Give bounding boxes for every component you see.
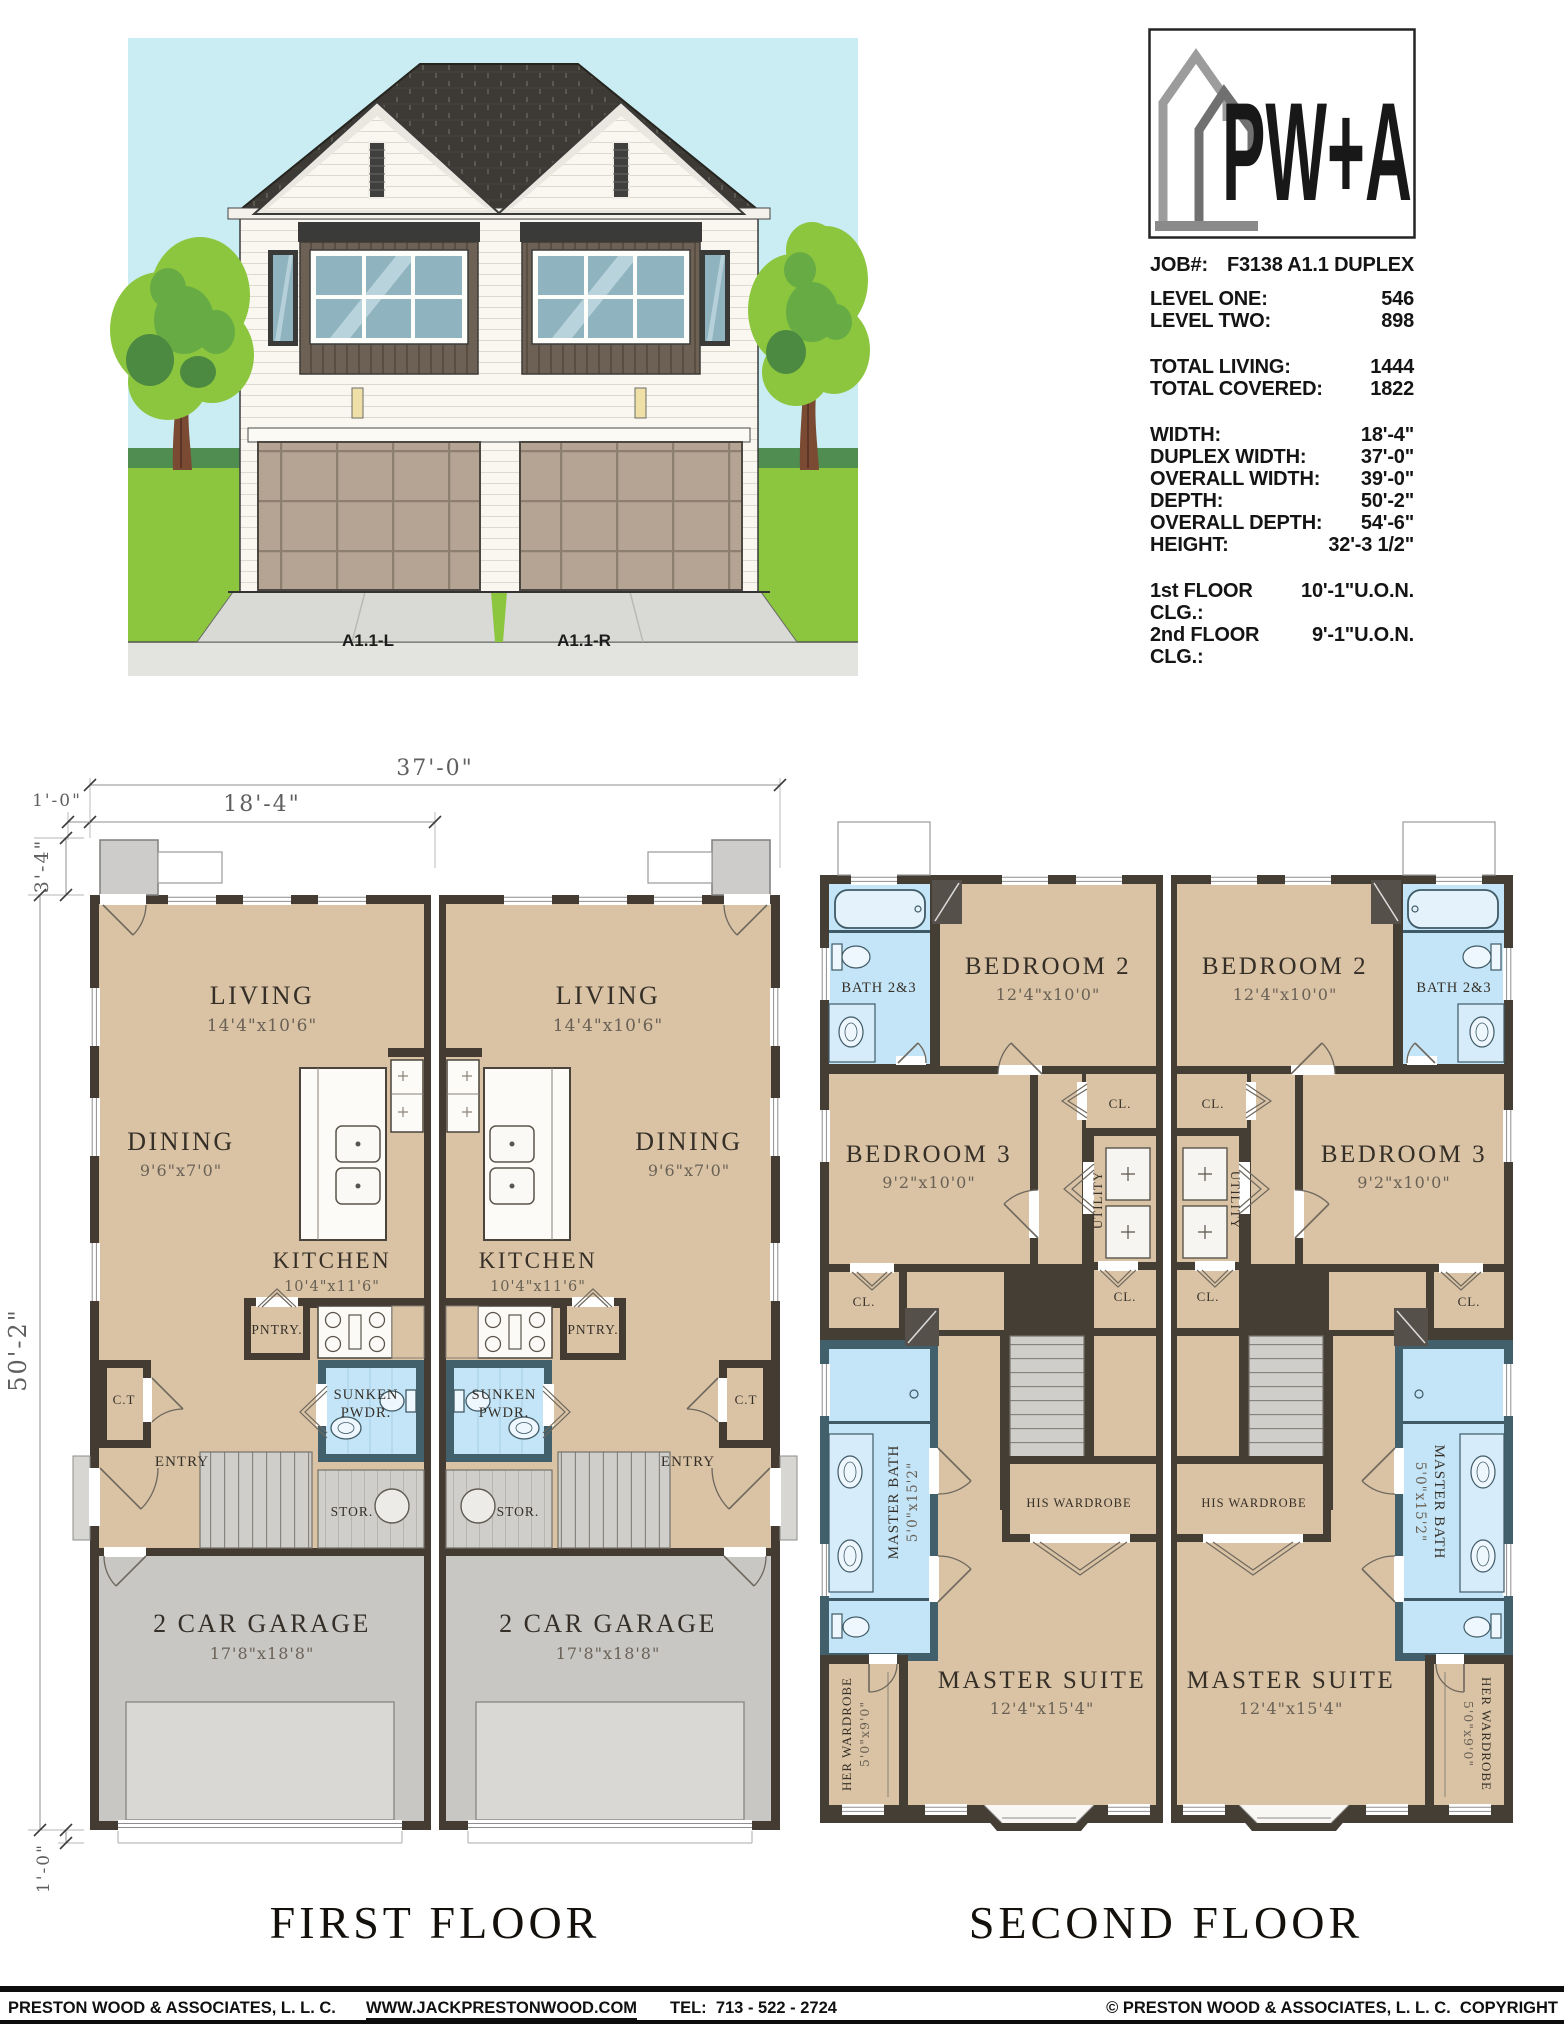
garage-door-left — [258, 442, 480, 590]
room-label-kitchen-left: KITCHEN — [273, 1248, 391, 1273]
window-left-unit — [298, 222, 480, 374]
first-floor-plan: 37'-0" 18'-4" 1'-0" 3'-4" 50'-2" 1'-0" L… — [0, 730, 800, 1970]
job-info-panel: JOB#: F3138 A1.1 DUPLEX LEVEL ONE:546 LE… — [1150, 254, 1414, 668]
slim-window-left — [268, 250, 298, 346]
footer-phone: TEL: 713 - 522 - 2724 — [670, 1996, 837, 2020]
room-label-bath23-right: BATH 2&3 — [1416, 980, 1491, 996]
info-value: 54'-6" — [1361, 512, 1414, 534]
room-size-mastersuite-right: 12'4"x15'4" — [1239, 1699, 1344, 1718]
room-label-garage-right: 2 CAR GARAGE — [499, 1609, 717, 1638]
room-label-kitchen-right: KITCHEN — [479, 1248, 597, 1273]
info-value: 1822 — [1370, 378, 1414, 400]
info-value: 898 — [1381, 310, 1414, 332]
footer-rule-top — [0, 1986, 1564, 1992]
room-size-bedroom2-left: 12'4"x10'0" — [996, 985, 1101, 1004]
info-label: 2nd FLOOR CLG.: — [1150, 624, 1312, 668]
info-row: DEPTH:50'-2" — [1150, 490, 1414, 512]
info-label: DEPTH: — [1150, 490, 1223, 512]
room-label-entry-right: ENTRY — [661, 1454, 715, 1470]
room-label-coat-right: C.T — [735, 1392, 758, 1407]
room-size-mastersuite-left: 12'4"x15'4" — [990, 1699, 1095, 1718]
info-label: LEVEL ONE: — [1150, 288, 1268, 310]
plan-sheet: A1.1-L A1.1-R PW+A JOB#: F3138 A1.1 DUPL… — [0, 0, 1564, 2030]
closet-label: CL. — [853, 1294, 876, 1309]
info-value: 32'-3 1/2" — [1328, 534, 1414, 556]
room-label-storage-left: STOR. — [331, 1504, 374, 1519]
info-label: 1st FLOOR CLG.: — [1150, 580, 1301, 624]
room-label-powder2-left: PWDR. — [341, 1405, 392, 1421]
footer-website-link[interactable]: WWW.JACKPRESTONWOOD.COM — [366, 1996, 637, 2020]
info-row: TOTAL COVERED:1822 — [1150, 378, 1414, 400]
room-label-dining-left: DINING — [127, 1127, 234, 1156]
info-label: LEVEL TWO: — [1150, 310, 1271, 332]
room-label-powder1-left: SUNKEN — [334, 1387, 399, 1403]
room-size-herwardrobe-left: 5'0"x9'0" — [857, 1701, 872, 1767]
info-row: WIDTH:18'-4" — [1150, 424, 1414, 446]
room-size-dining-left: 9'6"x7'0" — [140, 1161, 222, 1180]
room-size-dining-right: 9'6"x7'0" — [648, 1161, 730, 1180]
closet-label: CL. — [1114, 1289, 1137, 1304]
footer-website-text[interactable]: WWW.JACKPRESTONWOOD.COM — [366, 1999, 637, 2020]
info-row: HEIGHT:32'-3 1/2" — [1150, 534, 1414, 556]
info-row: TOTAL LIVING:1444 — [1150, 356, 1414, 378]
info-row: LEVEL ONE:546 — [1150, 288, 1414, 310]
room-label-bedroom3-left: BEDROOM 3 — [846, 1141, 1012, 1168]
window-right-unit — [520, 222, 702, 374]
room-label-masterbath-right: MASTER BATH — [1431, 1445, 1447, 1560]
room-label-living-left: LIVING — [210, 981, 315, 1010]
info-value: 18'-4" — [1361, 424, 1414, 446]
footer-rule-bottom — [0, 2020, 1564, 2024]
dim-overall-width: 37'-0" — [396, 756, 474, 781]
room-label-entry-left: ENTRY — [155, 1454, 209, 1470]
info-row: OVERALL DEPTH:54'-6" — [1150, 512, 1414, 534]
room-label-garage-left: 2 CAR GARAGE — [153, 1609, 371, 1638]
dim-porch-depth: 3'-4" — [31, 839, 53, 894]
info-label: OVERALL WIDTH: — [1150, 468, 1320, 490]
elevation-rendering: A1.1-L A1.1-R — [105, 20, 885, 680]
room-label-mastersuite-right: MASTER SUITE — [1187, 1667, 1395, 1694]
room-label-masterbath-left: MASTER BATH — [886, 1445, 902, 1560]
room-label-bath23-left: BATH 2&3 — [841, 980, 916, 996]
room-label-coat-left: C.T — [113, 1392, 136, 1407]
job-number-row: JOB#: F3138 A1.1 DUPLEX — [1150, 254, 1414, 276]
room-label-utility-right: UTILITY — [1228, 1171, 1243, 1229]
room-label-herwardrobe-left: HER WARDROBE — [839, 1677, 854, 1791]
room-label-storage-right: STOR. — [497, 1504, 540, 1519]
first-floor-title: FIRST FLOOR — [270, 1897, 601, 1948]
info-row: 1st FLOOR CLG.:10'-1"U.O.N. — [1150, 580, 1414, 624]
unit-label-left: A1.1-L — [342, 631, 394, 650]
closet-label: CL. — [1109, 1096, 1132, 1111]
room-label-bedroom2-left: BEDROOM 2 — [965, 953, 1131, 980]
room-size-herwardrobe-right: 5'0"x9'0" — [1461, 1701, 1476, 1767]
room-label-pantry-left: PNTRY. — [251, 1322, 302, 1337]
room-size-kitchen-right: 10'4"x11'6" — [490, 1279, 586, 1295]
info-value: 37'-0" — [1361, 446, 1414, 468]
pwa-logo: PW+A — [1148, 28, 1418, 240]
room-size-living-left: 14'4"x10'6" — [207, 1016, 317, 1036]
street — [128, 642, 858, 676]
room-size-bedroom2-right: 12'4"x10'0" — [1233, 985, 1338, 1004]
sconce-left — [352, 388, 363, 418]
info-label: OVERALL DEPTH: — [1150, 512, 1322, 534]
room-size-masterbath-left: 5'0"x15'2" — [905, 1462, 921, 1542]
info-label: HEIGHT: — [1150, 534, 1229, 556]
room-label-hiswardrobe-right: HIS WARDROBE — [1201, 1496, 1306, 1510]
info-value: 1444 — [1370, 356, 1414, 378]
room-size-garage-right: 17'8"x18'8" — [556, 1644, 661, 1663]
info-label: DUPLEX WIDTH: — [1150, 446, 1306, 468]
dim-unit-width: 18'-4" — [223, 792, 301, 817]
room-label-mastersuite-left: MASTER SUITE — [938, 1667, 1146, 1694]
brand-text: PW+A — [1222, 73, 1412, 230]
info-label: TOTAL LIVING: — [1150, 356, 1291, 378]
closet-label: CL. — [1458, 1294, 1481, 1309]
room-label-herwardrobe-right: HER WARDROBE — [1479, 1677, 1494, 1791]
info-value: 50'-2" — [1361, 490, 1414, 512]
dim-porch-offset: 1'-0" — [32, 791, 82, 811]
room-label-dining-right: DINING — [635, 1127, 742, 1156]
info-label: TOTAL COVERED: — [1150, 378, 1323, 400]
second-floor-title: SECOND FLOOR — [969, 1897, 1363, 1948]
room-label-utility-left: UTILITY — [1090, 1171, 1105, 1229]
info-row: 2nd FLOOR CLG.:9'-1"U.O.N. — [1150, 624, 1414, 668]
dim-depth: 50'-2" — [4, 1308, 32, 1392]
room-size-living-right: 14'4"x10'6" — [553, 1016, 663, 1036]
second-floor-plan: BATH 2&3 BEDROOM 2 12'4"x10'0" CL. BEDRO… — [790, 730, 1564, 1970]
room-label-bedroom2-right: BEDROOM 2 — [1202, 953, 1368, 980]
room-size-bedroom3-left: 9'2"x10'0" — [882, 1173, 975, 1192]
info-row: DUPLEX WIDTH:37'-0" — [1150, 446, 1414, 468]
info-label: WIDTH: — [1150, 424, 1221, 446]
info-row: LEVEL TWO:898 — [1150, 310, 1414, 332]
info-row: OVERALL WIDTH:39'-0" — [1150, 468, 1414, 490]
info-value: 10'-1"U.O.N. — [1301, 580, 1414, 624]
closet-label: CL. — [1197, 1289, 1220, 1304]
room-size-kitchen-left: 10'4"x11'6" — [284, 1279, 380, 1295]
job-label: JOB#: — [1150, 254, 1208, 276]
closet-label: CL. — [1202, 1096, 1225, 1111]
info-value: 39'-0" — [1361, 468, 1414, 490]
room-size-garage-left: 17'8"x18'8" — [210, 1644, 315, 1663]
info-value: 546 — [1381, 288, 1414, 310]
info-value: 9'-1"U.O.N. — [1312, 624, 1414, 668]
unit-label-right: A1.1-R — [557, 631, 611, 650]
dim-slab-offset: 1'-0" — [34, 1843, 54, 1893]
footer-copyright: © PRESTON WOOD & ASSOCIATES, L. L. C. CO… — [1106, 1996, 1558, 2020]
garage-door-right — [520, 442, 742, 590]
room-size-masterbath-right: 5'0"x15'2" — [1412, 1462, 1428, 1542]
footer-company: PRESTON WOOD & ASSOCIATES, L. L. C. — [8, 1996, 336, 2020]
sconce-right — [635, 388, 646, 418]
room-label-living-right: LIVING — [556, 981, 661, 1010]
slim-window-right — [700, 250, 730, 346]
room-label-pantry-right: PNTRY. — [567, 1322, 618, 1337]
room-size-bedroom3-right: 9'2"x10'0" — [1357, 1173, 1450, 1192]
room-label-bedroom3-right: BEDROOM 3 — [1321, 1141, 1487, 1168]
room-label-powder2-right: PWDR. — [479, 1405, 530, 1421]
job-value: F3138 A1.1 DUPLEX — [1227, 254, 1414, 276]
room-label-powder1-right: SUNKEN — [472, 1387, 537, 1403]
room-label-hiswardrobe-left: HIS WARDROBE — [1026, 1496, 1131, 1510]
